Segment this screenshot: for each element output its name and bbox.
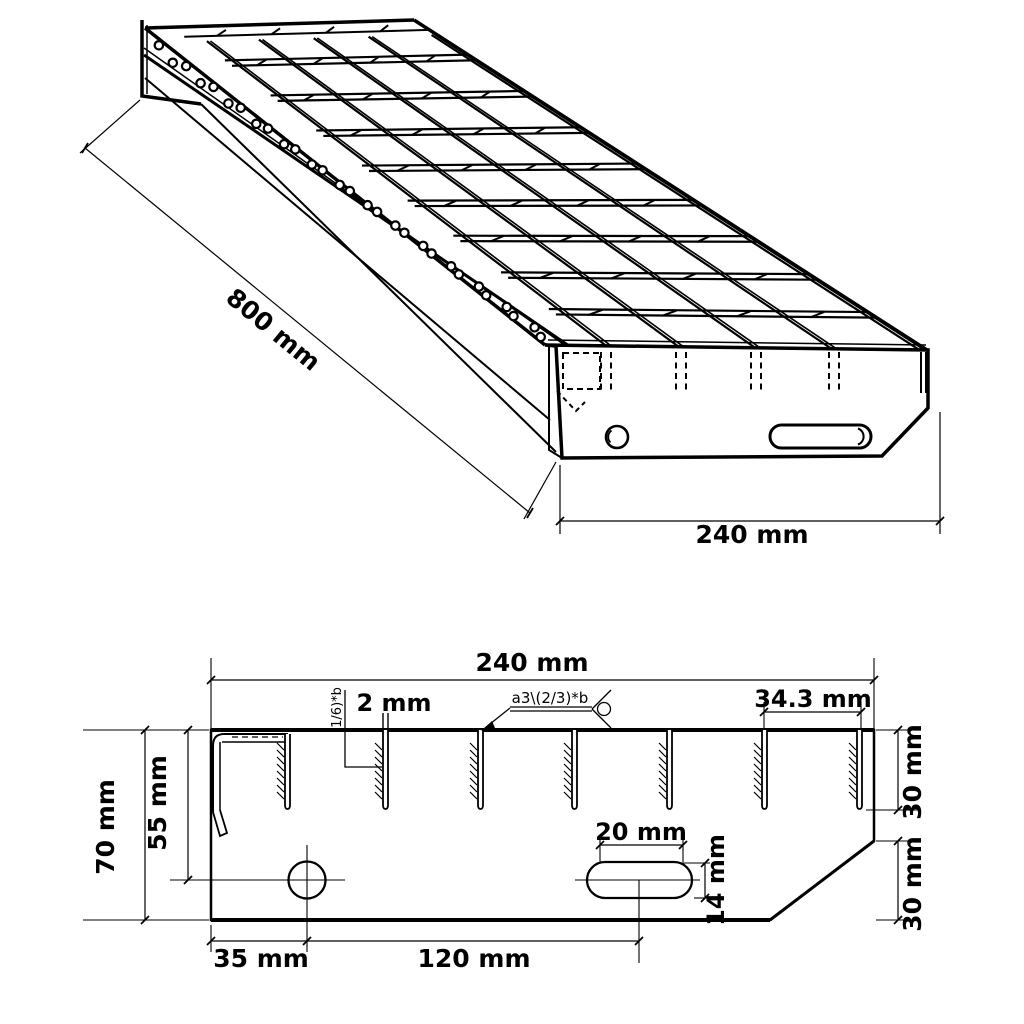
dimension-14mm-label: 14 mm: [702, 834, 730, 926]
dimension-2mm-label: 2 mm: [356, 689, 431, 717]
dimension-800mm-label: 800 mm: [220, 282, 326, 376]
anti-slip-perforations: [155, 41, 545, 341]
dimension-20mm-label: 20 mm: [595, 818, 687, 846]
section-view: 2 mm a3\(2/3)*b (1/6)*b: [83, 648, 927, 973]
dimension-55mm: 55 mm: [143, 726, 192, 884]
weld-side-label: (1/6)*b: [330, 687, 345, 733]
dimension-30mm-top-label: 30 mm: [898, 724, 927, 820]
dimension-70mm-label: 70 mm: [91, 779, 120, 875]
nosing-band: [144, 41, 572, 452]
technical-drawing: 800 mm 240 mm: [0, 0, 1024, 1024]
dimension-30mm-bottom: 30 mm: [876, 836, 927, 932]
dimension-240mm-section-label: 240 mm: [476, 648, 589, 677]
weld-tail-circle: [598, 703, 611, 716]
dimension-120mm-label: 120 mm: [418, 944, 531, 973]
dimension-35-120mm: 35 mm 120 mm: [207, 925, 643, 973]
dimension-30mm-bottom-label: 30 mm: [898, 836, 927, 932]
grating-grid: [184, 25, 924, 350]
bar-thickness-callout: 2 mm: [356, 689, 431, 729]
dimension-34-3mm: 34.3 mm: [754, 685, 872, 729]
dimension-34-3mm-label: 34.3 mm: [754, 685, 872, 713]
isometric-view: 800 mm 240 mm: [80, 20, 944, 549]
dimension-800mm: 800 mm: [80, 100, 556, 519]
weld-symbol-top: a3\(2/3)*b: [481, 689, 611, 731]
near-end-plate: [545, 340, 928, 458]
dimension-55mm-label: 55 mm: [143, 755, 172, 851]
weld-top-label: a3\(2/3)*b: [512, 689, 589, 707]
fixing-slot: [770, 425, 871, 448]
dimension-35mm-label: 35 mm: [213, 944, 309, 973]
dimension-240mm-iso-label: 240 mm: [696, 520, 809, 549]
drawing-canvas: 800 mm 240 mm: [0, 0, 1024, 1024]
fixing-hole: [606, 426, 628, 448]
